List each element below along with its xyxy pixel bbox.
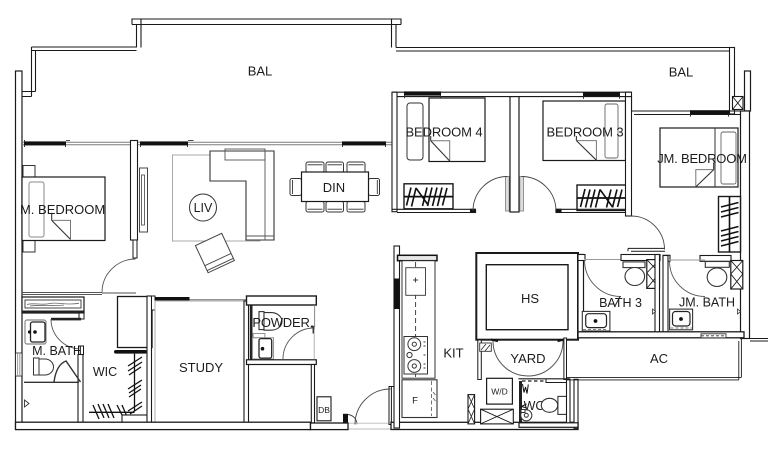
svg-text:WIC: WIC: [93, 365, 117, 379]
svg-text:DB: DB: [318, 405, 330, 415]
svg-text:F: F: [412, 396, 418, 407]
svg-text:M. BEDROOM: M. BEDROOM: [20, 202, 105, 217]
svg-text:STUDY: STUDY: [179, 360, 223, 375]
svg-text:BEDROOM 4: BEDROOM 4: [405, 125, 482, 140]
svg-text:POWDER: POWDER: [252, 315, 309, 330]
svg-text:BAL: BAL: [248, 64, 273, 79]
svg-text:HS: HS: [521, 291, 539, 306]
svg-text:DIN: DIN: [323, 180, 345, 195]
svg-text:YARD: YARD: [510, 351, 545, 366]
svg-text:LIV: LIV: [194, 201, 213, 215]
svg-text:W/D: W/D: [491, 387, 508, 397]
svg-text:M. BATH: M. BATH: [32, 344, 82, 358]
svg-text:KIT: KIT: [443, 346, 463, 361]
svg-text:JM. BEDROOM: JM. BEDROOM: [657, 151, 747, 166]
svg-text:BEDROOM 3: BEDROOM 3: [546, 125, 623, 140]
svg-text:JM. BATH: JM. BATH: [679, 296, 735, 310]
svg-text:BAL: BAL: [669, 65, 694, 80]
svg-text:BATH 3: BATH 3: [599, 296, 642, 310]
svg-text:AC: AC: [650, 351, 668, 366]
